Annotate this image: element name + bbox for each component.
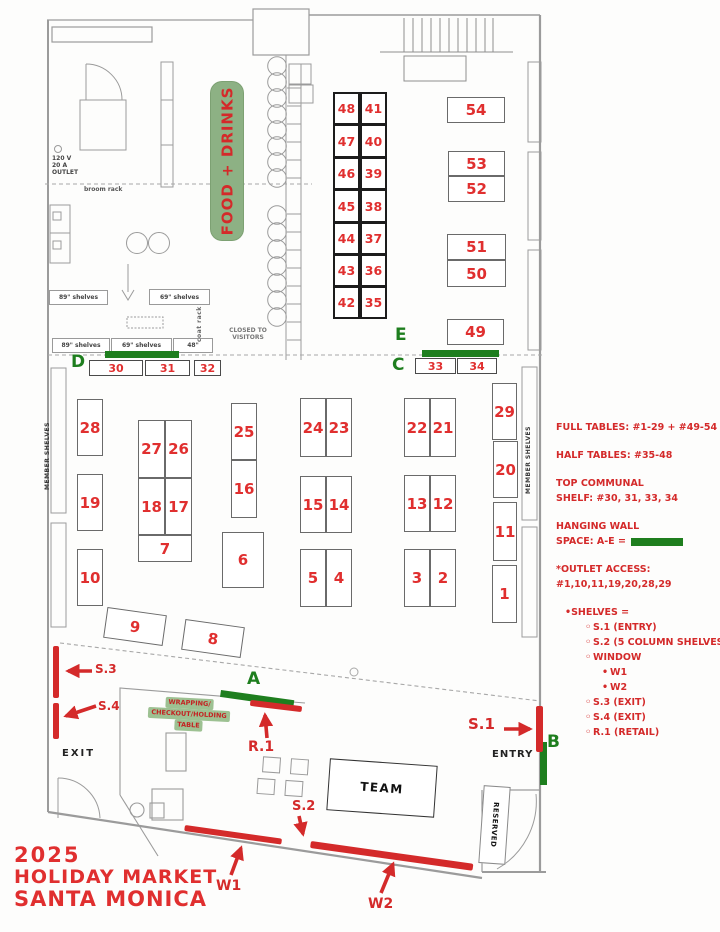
legend-shelves-item: •W1 [556, 665, 720, 680]
legend-shelves-item: ◦WINDOW [556, 650, 720, 665]
table-19: 19 [77, 474, 103, 531]
legend-shelves-item: •W2 [556, 680, 720, 695]
table-32: 32 [194, 360, 221, 376]
hanging-space-letter-D: D [71, 354, 85, 371]
s3-label: S.3 [95, 663, 117, 675]
page-title: 2025 HOLIDAY MARKET SANTA MONICA [14, 844, 217, 911]
legend-outlet: *OUTLET ACCESS: #1,10,11,19,20,28,29 [556, 562, 720, 592]
title-city: SANTA MONICA [14, 888, 217, 911]
hanging-space-bar-E [422, 350, 499, 357]
legend: FULL TABLES: #1-29 + #49-54 HALF TABLES:… [556, 420, 720, 740]
stairs [380, 18, 513, 81]
table-3: 3 [404, 549, 430, 607]
s4-label: S.4 [98, 700, 120, 712]
hanging-space-letter-A: A [247, 671, 260, 688]
table-6: 6 [222, 532, 264, 588]
member-shelves-left-label: MEMBER SHELVES [44, 406, 51, 490]
legend-shelves-item: ◦R.1 (RETAIL) [556, 725, 720, 740]
legend-green-bar-icon [631, 538, 683, 546]
table-45: 45 [333, 189, 360, 223]
legend-shelves-list: ◦S.1 (ENTRY)◦S.2 (5 COLUMN SHELVES)◦WIND… [556, 620, 720, 740]
table-38: 38 [360, 189, 387, 223]
outer-walls [47, 9, 546, 878]
table-10: 10 [77, 549, 103, 606]
table-41: 41 [360, 92, 387, 125]
table-50: 50 [447, 260, 506, 287]
table-28: 28 [77, 399, 103, 456]
food-drinks-banner: FOOD + DRINKS [211, 82, 243, 240]
team-table: TEAM [326, 758, 437, 817]
legend-shelves-item: ◦S.3 (EXIT) [556, 695, 720, 710]
table-47: 47 [333, 124, 360, 158]
table-33: 33 [415, 358, 456, 374]
legend-communal: TOP COMMUNAL SHELF: #30, 31, 33, 34 [556, 476, 720, 506]
table-35: 35 [360, 286, 387, 319]
rack-column [268, 55, 313, 360]
reserved-area: RESERVED [478, 785, 510, 865]
title-year: 2025 [14, 844, 217, 867]
closed-to-visitors-label: CLOSED TOVISITORS [222, 327, 274, 341]
legend-shelves-item: ◦S.4 (EXIT) [556, 710, 720, 725]
table-12: 12 [430, 475, 456, 532]
table-44: 44 [333, 222, 360, 255]
table-11: 11 [493, 502, 517, 561]
coat-rack-label: coat rack [196, 304, 203, 342]
outlet-note: 120 V20 AOUTLET [52, 155, 78, 176]
s1-shelf-bar [536, 706, 543, 752]
table-42: 42 [333, 286, 360, 319]
table-46: 46 [333, 157, 360, 190]
shelf-size-label: 89" shelves [52, 338, 110, 353]
table-23: 23 [326, 398, 352, 457]
table-37: 37 [360, 222, 387, 255]
s3-shelf-bar [53, 646, 59, 698]
s2-shelf-columns [257, 757, 308, 797]
table-2: 2 [430, 549, 456, 607]
w2-arrow-icon [381, 864, 393, 893]
hanging-space-letter-E: E [395, 327, 407, 344]
entry-label: ENTRY [492, 749, 533, 760]
w1-arrow-icon [231, 848, 241, 875]
floor-plan: 89" shelves69" shelves89" shelves69" she… [0, 0, 720, 932]
r1-arrow-icon [265, 715, 267, 738]
s4-shelf-bar [53, 703, 59, 739]
s4-arrow-icon [66, 706, 96, 716]
hanging-space-bar-D [105, 351, 179, 358]
shelf-size-label: 69" shelves [149, 289, 210, 305]
table-25: 25 [231, 403, 257, 460]
team-label: TEAM [360, 779, 404, 796]
outlet-symbol [55, 146, 62, 153]
reserved-label: RESERVED [489, 802, 500, 848]
table-51: 51 [447, 234, 506, 260]
food-drinks-label: FOOD + DRINKS [218, 87, 236, 236]
w2-label: W2 [368, 897, 393, 911]
member-shelves-right-label: MEMBER SHELVES [525, 410, 532, 494]
table-17: 17 [165, 478, 192, 535]
wrapping-checkout-label: WRAPPING/ CHECKOUT/HOLDING TABLE [143, 696, 235, 734]
exit-label: EXIT [62, 748, 95, 759]
legend-shelves-item: ◦S.1 (ENTRY) [556, 620, 720, 635]
legend-shelves-item: ◦S.2 (5 COLUMN SHELVES) [556, 635, 720, 650]
table-29: 29 [492, 383, 517, 440]
table-18: 18 [138, 478, 165, 535]
hanging-space-letter-C: C [392, 357, 404, 374]
s2-arrow-icon [299, 816, 303, 834]
r1-label: R.1 [248, 740, 274, 754]
legend-shelves-header: •SHELVES = [556, 605, 720, 620]
table-15: 15 [300, 476, 326, 533]
table-48: 48 [333, 92, 360, 125]
legend-half-tables: HALF TABLES: #35-48 [556, 448, 720, 463]
table-43: 43 [333, 254, 360, 287]
table-53: 53 [448, 151, 505, 176]
table-24: 24 [300, 398, 326, 457]
table-26: 26 [165, 420, 192, 478]
table-30: 30 [89, 360, 143, 376]
small-cabinet-box [127, 317, 163, 328]
table-13: 13 [404, 475, 430, 532]
s2-label: S.2 [292, 800, 315, 813]
table-14: 14 [326, 476, 352, 533]
s1-label: S.1 [468, 717, 495, 732]
legend-hanging: HANGING WALL SPACE: A-E = [556, 519, 720, 549]
table-36: 36 [360, 254, 387, 287]
table-5: 5 [300, 549, 326, 607]
table-34: 34 [457, 358, 497, 374]
table-27: 27 [138, 420, 165, 478]
title-event: HOLIDAY MARKET [14, 867, 217, 888]
shelf-size-label: 48" [173, 338, 213, 353]
table-31: 31 [145, 360, 190, 376]
table-52: 52 [448, 176, 505, 202]
shelf-size-label: 89" shelves [49, 290, 108, 305]
table-16: 16 [231, 460, 257, 518]
table-20: 20 [493, 441, 518, 498]
exit-door-arc [58, 778, 100, 818]
table-39: 39 [360, 157, 387, 190]
table-7: 7 [138, 535, 192, 562]
table-40: 40 [360, 124, 387, 158]
broom-rack-label: broom rack [84, 186, 122, 193]
table-49: 49 [447, 319, 504, 345]
table-4: 4 [326, 549, 352, 607]
door-arc [86, 64, 122, 100]
legend-full-tables: FULL TABLES: #1-29 + #49-54 [556, 420, 720, 435]
table-21: 21 [430, 398, 456, 457]
table-22: 22 [404, 398, 430, 457]
w1-label: W1 [216, 879, 241, 893]
table-54: 54 [447, 97, 505, 123]
table-1: 1 [492, 565, 517, 623]
